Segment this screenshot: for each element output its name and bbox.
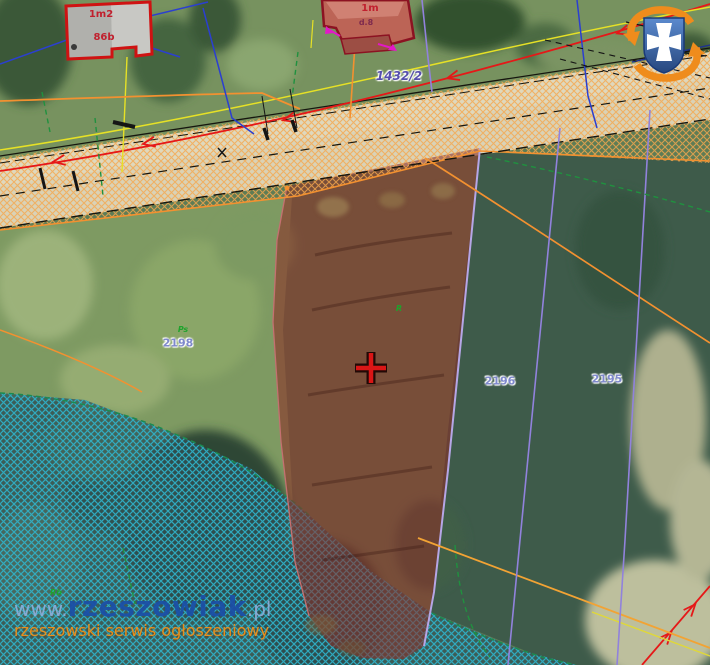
land-use-label: R [396,305,402,313]
building-label: d.8 [359,19,373,27]
parcel-number-label: 2195 [592,374,623,385]
land-use-label: Ps [178,326,188,334]
watermark-tld: .pl [247,597,272,621]
watermark-tagline: rzeszowski serwis ogłoszeniowy [14,621,271,640]
watermark-www: www. [14,597,68,621]
building-label: 1m [361,4,378,14]
watermark-name: rzeszowiak [68,590,247,623]
building-label: 86b [93,33,114,43]
rzeszowiak-logo-icon [620,4,708,84]
parcel-number-label: 1432/2 [376,70,422,82]
parcel-number-label: 2198 [163,338,194,349]
building-label: 1m2 [89,10,113,20]
site-watermark: www. rzeszowiak .pl rzeszowski serwis og… [14,590,271,640]
aerial-cadastral-map [0,0,710,665]
map-viewport[interactable]: 1m2 86b 1m d.8 1432/2 2198 2196 2195 Ps … [0,0,710,665]
parcel-number-label: 2196 [485,376,516,387]
